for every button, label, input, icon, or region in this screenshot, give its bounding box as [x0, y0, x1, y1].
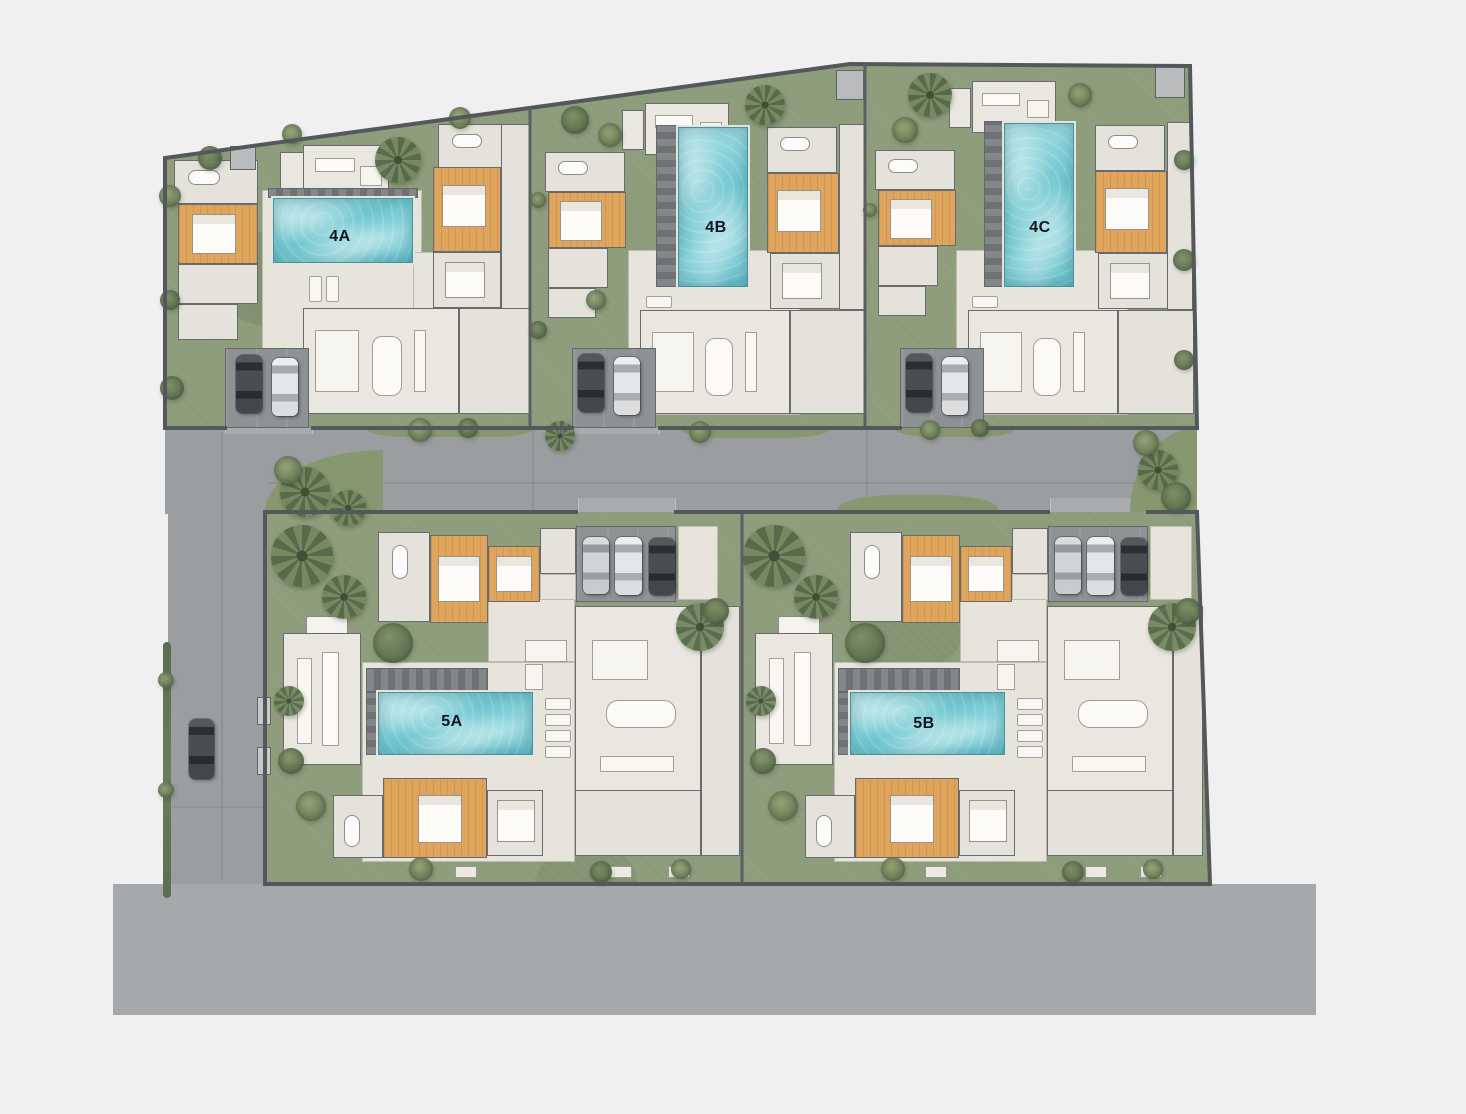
- sofa: [1064, 640, 1120, 680]
- tree-icon: [160, 290, 180, 310]
- tree-icon: [1174, 150, 1194, 170]
- villa-label-4a: 4A: [329, 228, 350, 246]
- kitchen-island: [1072, 756, 1146, 772]
- tree-icon: [561, 106, 589, 134]
- tree-icon: [375, 137, 421, 183]
- tree-icon: [863, 203, 877, 217]
- tree-icon: [920, 420, 940, 440]
- villa-5b: [0, 0, 1466, 1114]
- car-icon: [1087, 537, 1114, 595]
- bathtub: [864, 545, 880, 579]
- tree-icon: [1068, 83, 1092, 107]
- tree-icon: [908, 73, 952, 117]
- pool-deck: [838, 692, 850, 755]
- entry-walk: [1012, 574, 1048, 600]
- tree-icon: [703, 598, 729, 624]
- tree-icon: [598, 123, 622, 147]
- tree-icon: [278, 748, 304, 774]
- sun-lounger: [1017, 746, 1043, 758]
- tree-icon: [274, 686, 304, 716]
- tree-icon: [794, 575, 838, 619]
- tree-icon: [449, 107, 471, 129]
- tree-icon: [158, 672, 174, 688]
- tree-icon: [971, 419, 989, 437]
- villa-label-4b: 4B: [705, 219, 726, 237]
- sun-lounger: [1017, 730, 1043, 742]
- tree-icon: [274, 456, 302, 484]
- tree-icon: [160, 376, 184, 400]
- tree-icon: [750, 748, 776, 774]
- tree-icon: [530, 192, 546, 208]
- tree-icon: [271, 525, 333, 587]
- tree-icon: [158, 782, 174, 798]
- tree-icon: [746, 686, 776, 716]
- tree-icon: [373, 623, 413, 663]
- tree-icon: [590, 861, 612, 883]
- tree-icon: [743, 525, 805, 587]
- bed: [890, 795, 934, 843]
- tree-icon: [1161, 482, 1191, 512]
- tree-icon: [330, 490, 366, 526]
- patio-unit: [1085, 866, 1107, 878]
- tree-icon: [671, 859, 691, 879]
- bed: [969, 800, 1007, 842]
- tree-icon: [1173, 249, 1195, 271]
- villa-label-4c: 4C: [1029, 219, 1050, 237]
- tree-icon: [408, 418, 432, 442]
- tree-icon: [296, 791, 326, 821]
- sun-lounger: [1017, 714, 1043, 726]
- tree-icon: [768, 791, 798, 821]
- villa-label-5a: 5A: [441, 713, 462, 731]
- tree-icon: [198, 146, 222, 170]
- car-icon: [1055, 537, 1081, 594]
- bathtub: [816, 815, 832, 847]
- bed: [968, 556, 1004, 592]
- tree-icon: [409, 857, 433, 881]
- pool-deck: [838, 668, 960, 692]
- patio-unit: [925, 866, 947, 878]
- bed: [910, 556, 952, 602]
- bath-dressing: [1047, 790, 1173, 856]
- car-icon: [1121, 538, 1147, 595]
- wc: [1012, 528, 1048, 574]
- dining-table: [794, 652, 811, 746]
- sun-lounger: [1017, 698, 1043, 710]
- tree-icon: [529, 321, 547, 339]
- villa-label-5b: 5B: [913, 715, 934, 733]
- tree-icon: [1175, 598, 1201, 624]
- tree-icon: [1143, 859, 1163, 879]
- tree-icon: [322, 575, 366, 619]
- tree-icon: [745, 85, 785, 125]
- sofa: [997, 664, 1015, 690]
- tree-icon: [845, 623, 885, 663]
- dining-table: [1078, 700, 1148, 728]
- tree-icon: [689, 421, 711, 443]
- tree-icon: [892, 117, 918, 143]
- tree-icon: [458, 418, 478, 438]
- tree-icon: [881, 857, 905, 881]
- tree-icon: [1062, 861, 1084, 883]
- tree-icon: [586, 290, 606, 310]
- site-plan-canvas: 4A 4B 4C 5A 5B: [0, 0, 1466, 1114]
- tree-icon: [159, 185, 181, 207]
- tree-icon: [282, 124, 302, 144]
- entry-walk: [1150, 526, 1192, 600]
- tree-icon: [1174, 350, 1194, 370]
- tree-icon: [545, 421, 575, 451]
- tree-icon: [1133, 430, 1159, 456]
- sofa: [997, 640, 1039, 662]
